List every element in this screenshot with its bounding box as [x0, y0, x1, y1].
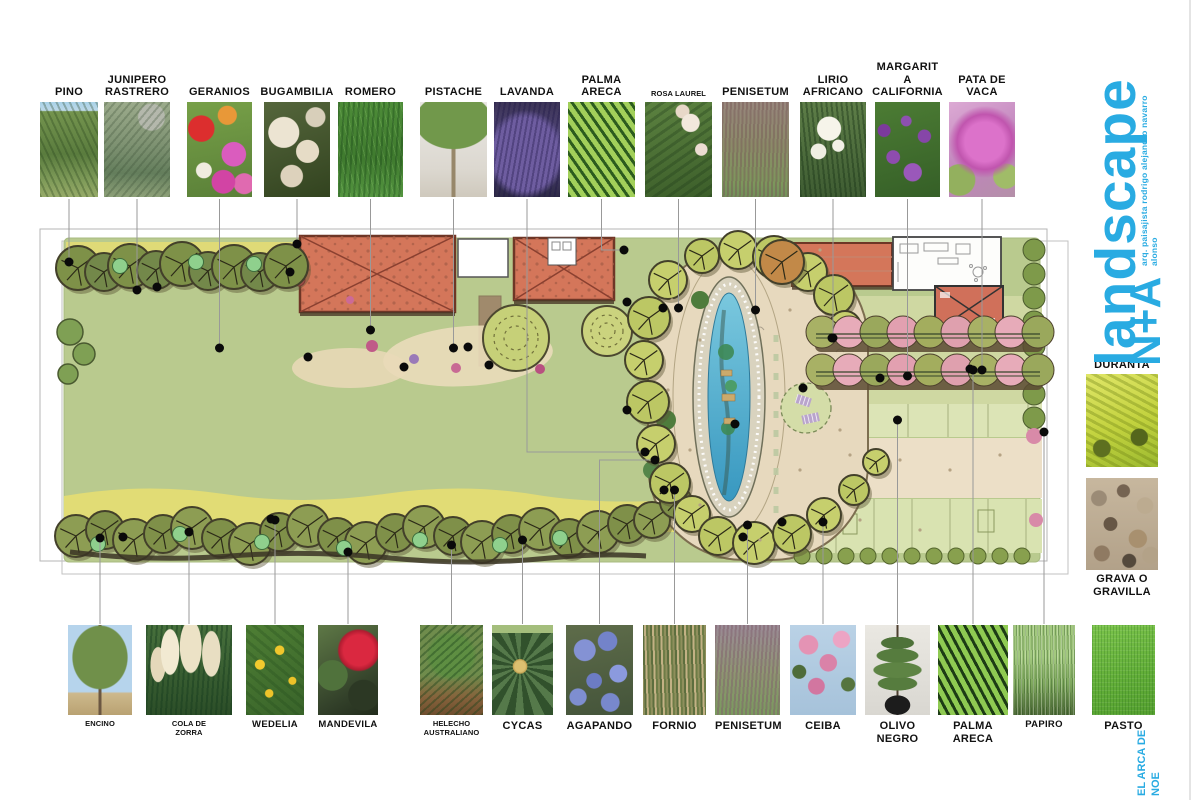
plant-photo: [800, 102, 866, 197]
plant-photo: [318, 625, 378, 715]
plant-card: ROSA LAUREL: [645, 66, 712, 197]
plant-label: PENISETUM: [722, 66, 789, 102]
plant-photo: [146, 625, 232, 715]
plant-card: PINO: [40, 66, 98, 197]
plant-label: OLIVO NEGRO: [865, 720, 930, 745]
plant-photo: [949, 102, 1015, 197]
plant-label: CYCAS: [492, 720, 553, 733]
plant-card: PENISETUM: [722, 66, 789, 197]
plant-card: GERANIOS: [187, 66, 252, 197]
plant-photo: [568, 102, 635, 197]
building-2: [514, 238, 614, 302]
plant-label: PINO: [40, 66, 98, 102]
plant-card: HELECHO AUSTRALIANO: [420, 625, 483, 737]
plant-card: AGAPANDO: [566, 625, 633, 733]
building-1: [300, 236, 455, 314]
plant-photo: [1013, 625, 1075, 715]
plant-card: LAVANDA: [494, 66, 560, 197]
plant-photo: [790, 625, 856, 715]
plant-card: CYCAS: [492, 625, 553, 733]
plant-label: LIRIO AFRICANO: [800, 66, 866, 102]
plant-card: DURANTA: [1086, 356, 1158, 467]
presentation-board: PINOJUNIPERO RASTREROGERANIOSBUGAMBILIAR…: [0, 0, 1200, 800]
plant-label: HELECHO AUSTRALIANO: [420, 720, 483, 737]
plant-photo: [875, 102, 940, 197]
project-name-mark: EL ARCA DE NOE: [1136, 710, 1164, 796]
plant-card: PALMA ARECA: [568, 66, 635, 197]
plant-photo: [187, 102, 252, 197]
plant-label: MANDEVILA: [318, 720, 378, 731]
plant-card: GRAVA O GRAVILLA: [1086, 478, 1158, 600]
plant-label: GERANIOS: [187, 66, 252, 102]
plant-card: PATA DE VACA: [949, 66, 1015, 197]
plant-label: WEDELIA: [246, 720, 304, 731]
plant-label: LAVANDA: [494, 66, 560, 102]
plant-card: ENCINO: [68, 625, 132, 729]
plant-photo: [938, 625, 1008, 715]
plant-label: FORNIO: [643, 720, 706, 733]
plant-photo: [420, 102, 487, 197]
plant-card: WEDELIA: [246, 625, 304, 731]
plant-label: MARGARIT A CALIFORNIA: [875, 66, 940, 102]
plant-photo: [1086, 478, 1158, 570]
plant-card: BUGAMBILIA: [264, 66, 330, 197]
plant-card: PAPIRO: [1013, 625, 1075, 731]
plant-photo: [492, 625, 553, 715]
plant-photo: [338, 102, 403, 197]
plant-label: PENISETUM: [715, 720, 780, 733]
plant-label: CEIBA: [790, 720, 856, 733]
plant-photo: [494, 102, 560, 197]
plant-label: ENCINO: [68, 720, 132, 729]
plant-label: GRAVA O GRAVILLA: [1086, 573, 1158, 598]
plant-card: PISTACHE: [420, 66, 487, 197]
plant-card: OLIVO NEGRO: [865, 625, 930, 745]
plant-label: PISTACHE: [420, 66, 487, 102]
plant-photo: [643, 625, 706, 715]
plant-card: ROMERO: [338, 66, 403, 197]
plant-label: ROSA LAUREL: [645, 66, 712, 102]
plant-photo: [246, 625, 304, 715]
plant-photo: [420, 625, 483, 715]
plant-card: JUNIPERO RASTRERO: [104, 66, 170, 197]
plant-label: COLA DE ZORRA: [146, 720, 232, 737]
plant-photo: [264, 102, 330, 197]
plant-photo: [1086, 374, 1158, 467]
plant-label: PALMA ARECA: [938, 720, 1008, 745]
plant-card: MANDEVILA: [318, 625, 378, 731]
plant-label: JUNIPERO RASTRERO: [104, 66, 170, 102]
plant-label: PAPIRO: [1013, 720, 1075, 731]
plant-photo: [566, 625, 633, 715]
plant-photo: [1092, 625, 1155, 715]
building-4-floorplan: [893, 237, 1001, 290]
plant-photo: [68, 625, 132, 715]
plant-card: PALMA ARECA: [938, 625, 1008, 745]
plant-label: PATA DE VACA: [949, 66, 1015, 102]
plant-photo: [645, 102, 712, 197]
plant-card: CEIBA: [790, 625, 856, 733]
plant-label: AGAPANDO: [566, 720, 633, 733]
plant-card: MARGARIT A CALIFORNIA: [875, 66, 940, 197]
annex-white: [458, 239, 508, 277]
plant-label: PALMA ARECA: [568, 66, 635, 102]
plant-card: LIRIO AFRICANO: [800, 66, 866, 197]
plant-label: ROMERO: [338, 66, 403, 102]
logo-credit-text: arq. paisajista rodrigo alejandro navarr…: [1139, 68, 1159, 266]
plant-photo: [104, 102, 170, 197]
plant-card: COLA DE ZORRA: [146, 625, 232, 737]
plant-photo: [865, 625, 930, 715]
plant-card: FORNIO: [643, 625, 706, 733]
plant-photo: [722, 102, 789, 197]
plant-card: PENISETUM: [715, 625, 780, 733]
plant-photo: [40, 102, 98, 197]
plant-label: BUGAMBILIA: [264, 66, 330, 102]
logo-initials: N+A: [1124, 254, 1168, 366]
plant-photo: [715, 625, 780, 715]
